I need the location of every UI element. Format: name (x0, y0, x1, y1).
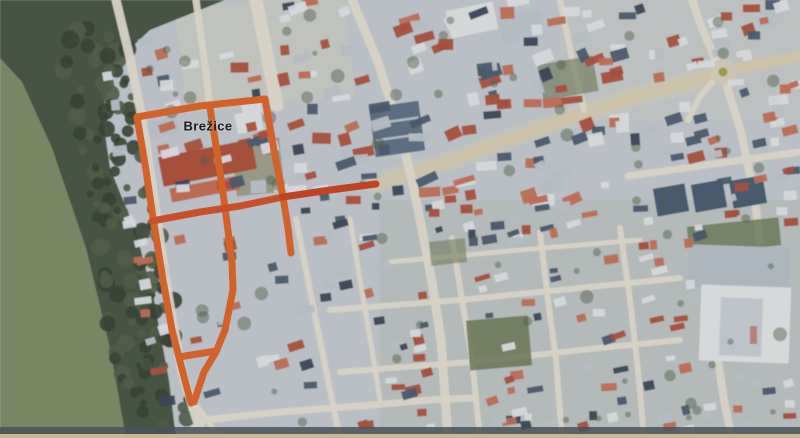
scan-grain-light (0, 0, 800, 438)
satellite-map[interactable]: Brežice (0, 0, 800, 438)
scan-edge-layer (0, 427, 800, 438)
map-canvas (0, 0, 800, 438)
